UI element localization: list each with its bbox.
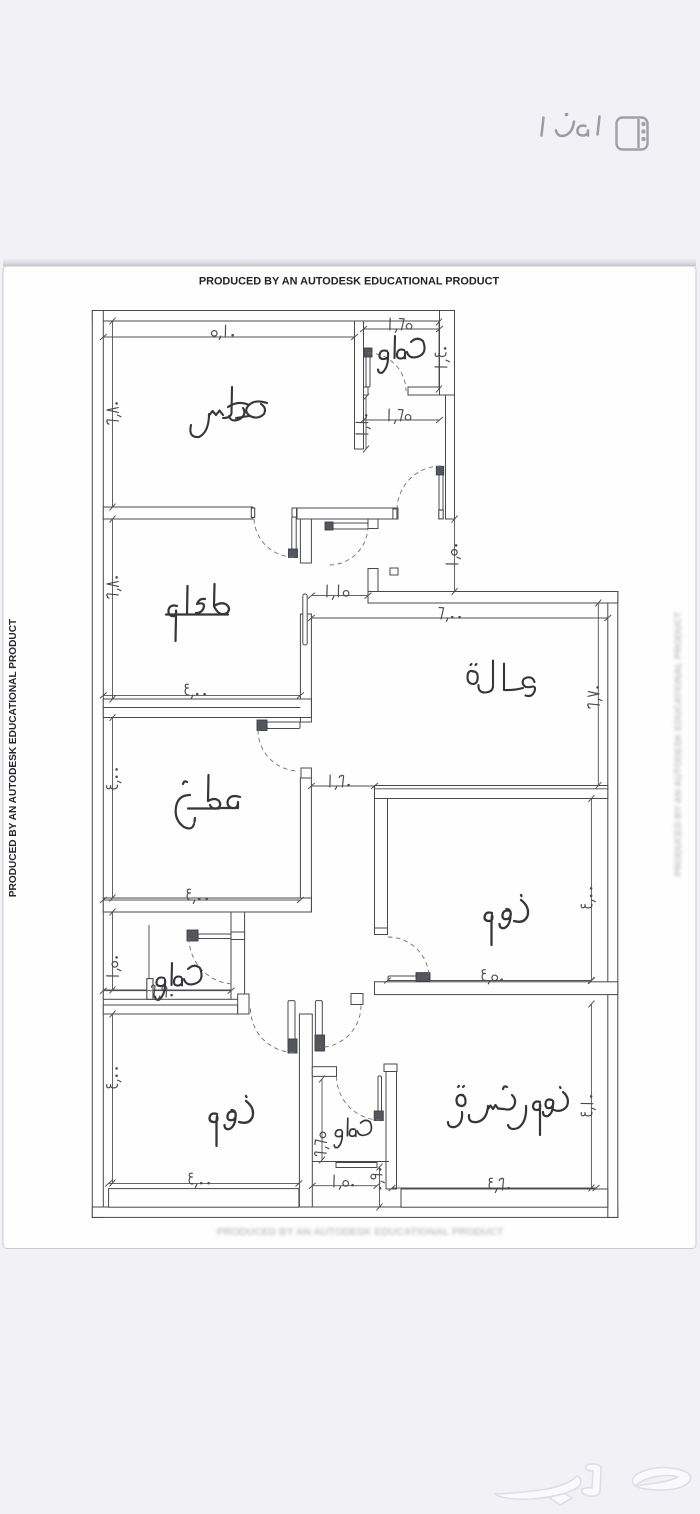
svg-text:PRODUCED BY AN AUTODESK EDUCAT: PRODUCED BY AN AUTODESK EDUCATIONAL PROD… — [217, 1227, 504, 1238]
svg-text:PRODUCED BY AN AUTODESK EDUCAT: PRODUCED BY AN AUTODESK EDUCATIONAL PROD… — [673, 612, 684, 877]
svg-text:PRODUCED BY AN AUTODESK EDUCAT: PRODUCED BY AN AUTODESK EDUCATIONAL PROD… — [199, 276, 500, 288]
svg-text:PRODUCED BY AN AUTODESK EDUCAT: PRODUCED BY AN AUTODESK EDUCATIONAL PROD… — [8, 618, 19, 897]
